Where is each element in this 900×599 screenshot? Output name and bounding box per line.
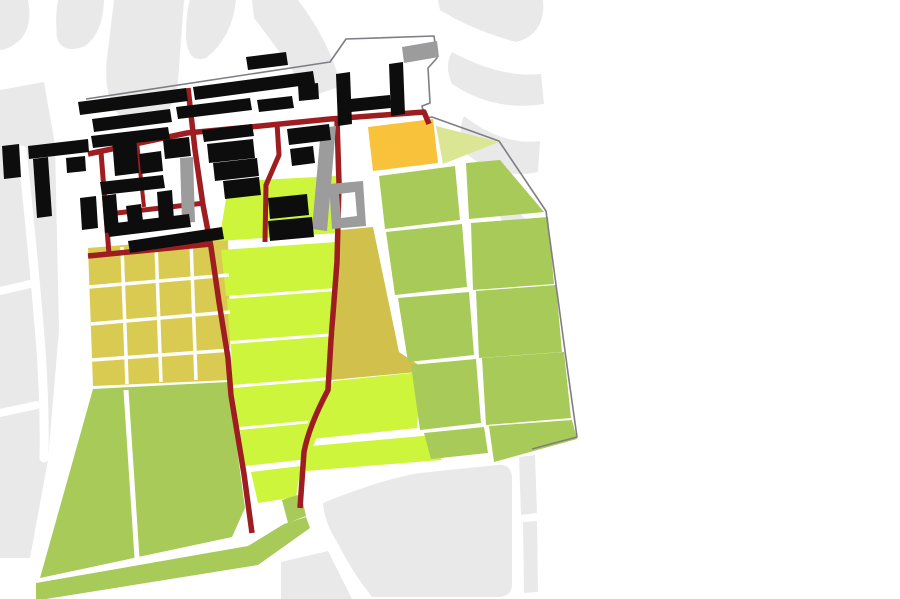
parcel-chartreuse-9: [300, 434, 444, 471]
bldg-mid-b: [139, 151, 163, 174]
block-bottomright-strip-1: [519, 455, 537, 515]
gray-topright-bar: [402, 41, 439, 63]
block-bottomright-main: [323, 465, 512, 597]
block-bottomcenter: [281, 551, 352, 599]
parcel-green-r3-left: [398, 292, 474, 362]
block-topcenter-swoosh-left: [186, 0, 236, 59]
bldg-court-right: [157, 190, 174, 222]
block-topright-swoosh-2: [448, 52, 544, 106]
site-plan-map: [0, 0, 900, 599]
bldg-h-right: [389, 62, 405, 116]
parcel-green-r4-right: [482, 352, 571, 425]
parcel-chartreuse-2: [221, 242, 336, 296]
parcel-green-r1-left: [379, 166, 460, 229]
bldg-west-block-1: [66, 156, 86, 173]
parcel-chartreuse-4: [231, 336, 334, 385]
bldg-top-small: [246, 52, 288, 70]
parcel-green-r2-right: [471, 217, 554, 290]
road-short-vertical: [137, 142, 144, 207]
bldg-h-cross: [350, 95, 391, 112]
gray-bar: [180, 157, 195, 223]
block-topleft-1: [0, 0, 29, 50]
bldg-mid-a: [112, 136, 139, 176]
parcel-green-southwest: [40, 382, 245, 578]
gray-ring-building: [329, 181, 366, 229]
parcel-green-r5-left: [424, 427, 488, 459]
bldg-row1-b: [193, 71, 315, 100]
block-bottomright-strip-2: [523, 521, 538, 593]
bldg-row2-c: [257, 96, 294, 112]
bldg-west-l: [2, 144, 21, 179]
bldg-east-b: [268, 217, 314, 241]
bldg-mid-e: [290, 146, 315, 166]
map-svg: [0, 0, 900, 599]
parcel-orange: [368, 119, 438, 171]
parcel-green-r2-left: [386, 224, 467, 295]
bldg-west-block-2: [80, 196, 98, 230]
bldg-h-small: [298, 83, 319, 101]
parcel-green-r3-right: [476, 285, 562, 358]
block-topright-swoosh-1: [438, 0, 543, 42]
bldg-east-a: [268, 194, 309, 219]
bldg-court-inner: [126, 204, 143, 223]
bldg-mid-c: [163, 137, 191, 159]
block-topleft-2: [56, 0, 104, 49]
parcel-green-r4-left: [411, 359, 481, 430]
bldg-court-top: [100, 175, 165, 195]
parcel-chartreuse-3: [227, 291, 336, 341]
bldg-h-left: [336, 72, 352, 126]
